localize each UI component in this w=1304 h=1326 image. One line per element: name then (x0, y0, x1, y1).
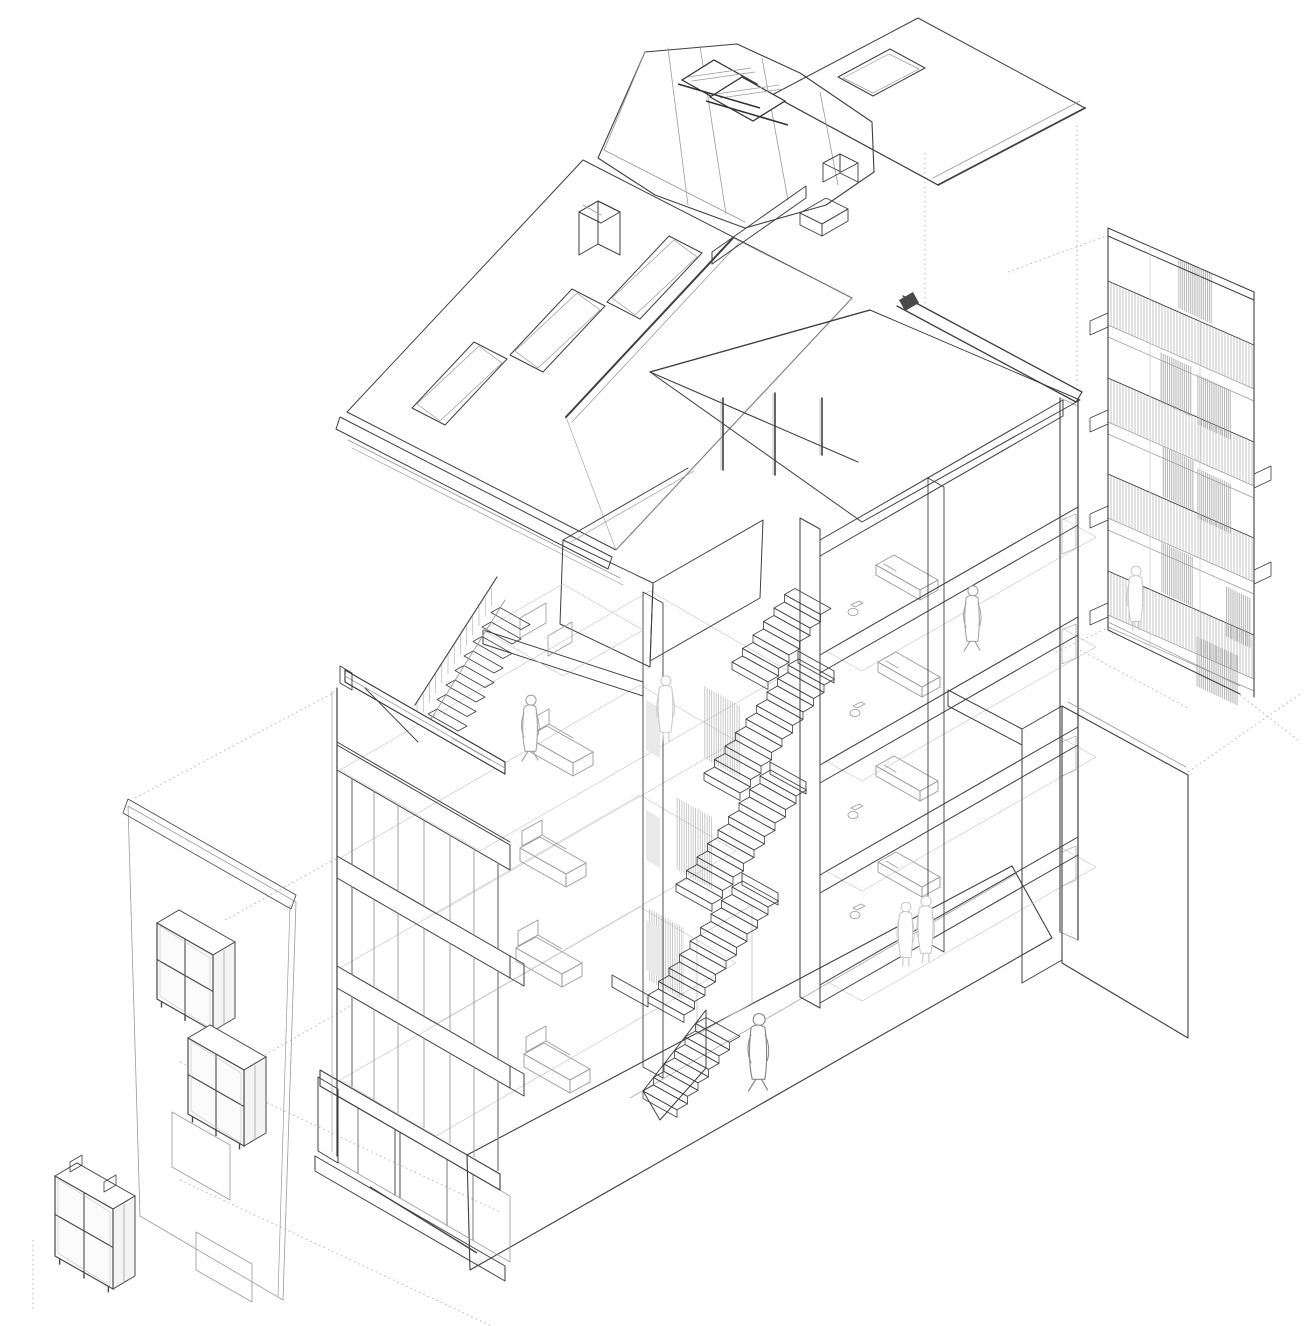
front-roof-plane (336, 160, 852, 585)
toilet (848, 804, 863, 819)
sofa (516, 920, 582, 987)
bay-window-boxes (55, 910, 266, 1292)
balcony-bracket (1090, 410, 1108, 432)
stair-slat-screen (704, 686, 740, 778)
stair-landing (742, 873, 778, 905)
chimney (579, 201, 598, 255)
bed (876, 555, 938, 600)
toilet (848, 601, 863, 616)
front-roof-skylight (607, 236, 702, 319)
terrace-parapet (337, 745, 510, 870)
right-wing-roof (650, 310, 1080, 522)
floor-slab-band (820, 617, 1078, 783)
bed (876, 756, 938, 801)
floor-slab-band (337, 966, 510, 1088)
person-at-ground-2 (917, 896, 935, 962)
stair-slat-screen (676, 797, 712, 889)
attic-dormer-volume (598, 44, 874, 264)
sofa (524, 1026, 590, 1093)
courtyard-parapet (1062, 706, 1188, 1038)
balcony-screen-facade (1090, 228, 1271, 706)
balcony-bracket (1090, 603, 1108, 625)
eaves-bar (712, 186, 806, 264)
balcony-bracket (1090, 313, 1108, 335)
wall-window-opening (196, 1232, 252, 1302)
floor-slab-band (337, 856, 510, 978)
people-figures (522, 566, 1145, 1091)
toilet (850, 702, 865, 717)
stair-landing (770, 762, 806, 794)
sofa (520, 820, 586, 887)
attic-stair-wall (560, 540, 653, 667)
floor-slab-band (820, 727, 1078, 893)
person-on-upper-floor (964, 586, 981, 652)
exploded-axonometric-drawing: Exploded axonometric cutaway drawing of … (0, 0, 1304, 1326)
bed (878, 652, 940, 697)
floor-slab-band (820, 837, 1078, 1003)
toilet (850, 904, 865, 919)
floor-slab-band (820, 507, 1078, 673)
bed (878, 852, 940, 897)
front-roof-skylight (412, 342, 507, 425)
rear-roof-plane (772, 18, 1085, 185)
front-roof-skylight (510, 289, 605, 372)
facade-window (1062, 514, 1076, 554)
balcony-bracket (1090, 506, 1108, 528)
architectural-drawing-canvas: Exploded axonometric cutaway drawing of … (0, 0, 1304, 1326)
storefront-canopy (320, 1070, 500, 1190)
stair-landing (798, 651, 834, 683)
person-on-street (748, 1014, 769, 1092)
interior-floor (826, 847, 1096, 1001)
wall-coping (123, 799, 296, 909)
main-building-cutaway (315, 292, 1188, 1281)
